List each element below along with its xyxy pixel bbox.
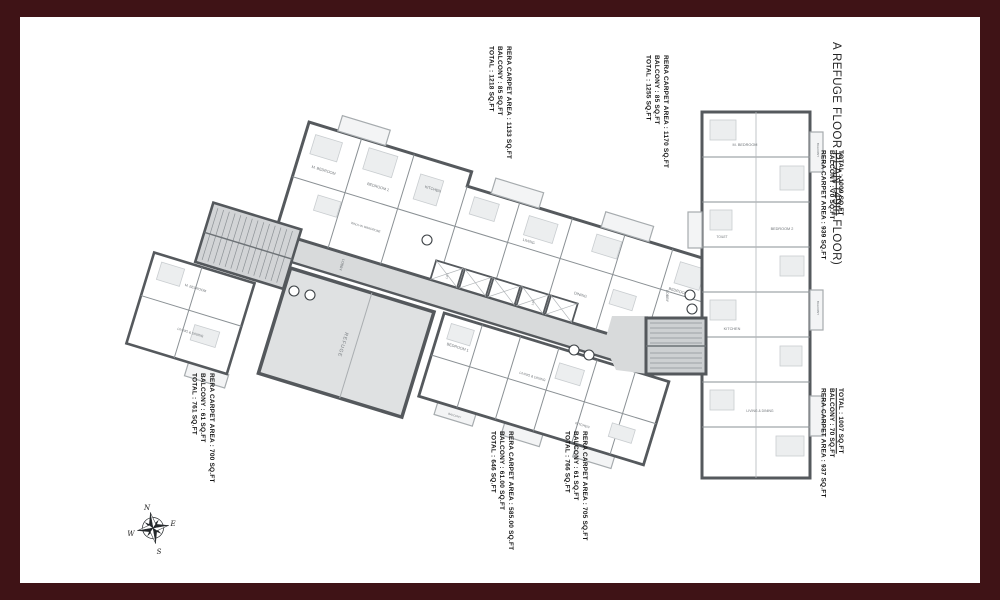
unit-area-label-937: RERA CARPET AREA : 937 SQ.FT BALCONY : 7…: [818, 388, 844, 498]
carpet-area-line: RERA CARPET AREA : 1170 SQ.FT: [660, 55, 669, 168]
carpet-area-line: RERA CARPET AREA : 939 SQ.FT: [818, 150, 827, 260]
marker-icon: [569, 345, 579, 355]
room-label: TOILET: [716, 235, 727, 239]
room-label: M. BEDROOM: [733, 143, 758, 147]
plan-title: A REFUGE FLOOR PLAN (49th FLOOR): [830, 42, 842, 265]
balcony-line: BALCONY : 70 SQ.FT: [827, 388, 836, 498]
compass-w-label: W: [127, 530, 135, 538]
marker-icon: [685, 290, 695, 300]
carpet-area-line: RERA CARPET AREA : 585.00 SQ.FT: [505, 431, 514, 550]
compass-star-icon: [134, 509, 171, 546]
balcony-line: BALCONY : 61 SQ.FT: [198, 373, 207, 483]
compass-s-label: S: [157, 548, 162, 556]
room-label: LOBBY: [665, 290, 669, 303]
room-label: LIVING & DINING: [746, 409, 773, 413]
carpet-area-line: RERA CARPET AREA : 1133 SQ.FT: [503, 46, 512, 159]
marker-icon: [584, 350, 594, 360]
total-line: TOTAL : 646 SQ.FT: [488, 431, 497, 550]
staircase-central: [646, 318, 706, 374]
total-line: TOTAL : 1007 SQ.FT: [835, 388, 844, 498]
total-line: TOTAL : 1255 SQ.FT: [643, 55, 652, 168]
room-label: BALCONY: [816, 301, 820, 315]
balcony-line: BALCONY : 61.00 SQ.FT: [497, 431, 506, 550]
balcony-line: BALCONY : 85 SQ.FT: [495, 46, 504, 159]
marker-icon: [305, 290, 315, 300]
compass-rose: N E S W: [127, 504, 175, 556]
room-label: BEDROOM 2: [771, 227, 794, 231]
marker-icon: [289, 286, 299, 296]
total-line: TOTAL : 1218 SQ.FT: [486, 46, 495, 159]
balcony-line: BALCONY : 85 SQ.FT: [652, 55, 661, 168]
balcony-line: BALCONY : 61 SQ.FT: [571, 431, 580, 541]
compass-n-label: N: [143, 504, 151, 512]
right-wing: M. BEDROOM TOILET BEDROOM 2 KITCHEN LIVI…: [688, 112, 823, 478]
carpet-area-line: RERA CARPET AREA : 700 SQ.FT: [206, 373, 215, 483]
unit-area-label-700: RERA CARPET AREA : 700 SQ.FT BALCONY : 6…: [189, 373, 215, 483]
carpet-area-line: RERA CARPET AREA : 705 SQ.FT: [579, 431, 588, 541]
room-label: KITCHEN: [724, 327, 741, 331]
carpet-area-line: RERA CARPET AREA : 937 SQ.FT: [818, 388, 827, 498]
total-line: TOTAL : 766 SQ.FT: [562, 431, 571, 541]
unit-area-label-585: RERA CARPET AREA : 585.00 SQ.FT BALCONY …: [488, 431, 514, 550]
total-line: TOTAL : 761 SQ.FT: [189, 373, 198, 483]
unit-area-label-1170: RERA CARPET AREA : 1170 SQ.FT BALCONY : …: [643, 55, 669, 168]
marker-icon: [422, 235, 432, 245]
marker-icon: [687, 304, 697, 314]
unit-area-label-1133: RERA CARPET AREA : 1133 SQ.FT BALCONY : …: [486, 46, 512, 159]
unit-area-label-705: RERA CARPET AREA : 705 SQ.FT BALCONY : 6…: [562, 431, 588, 541]
compass-e-label: E: [169, 520, 175, 528]
